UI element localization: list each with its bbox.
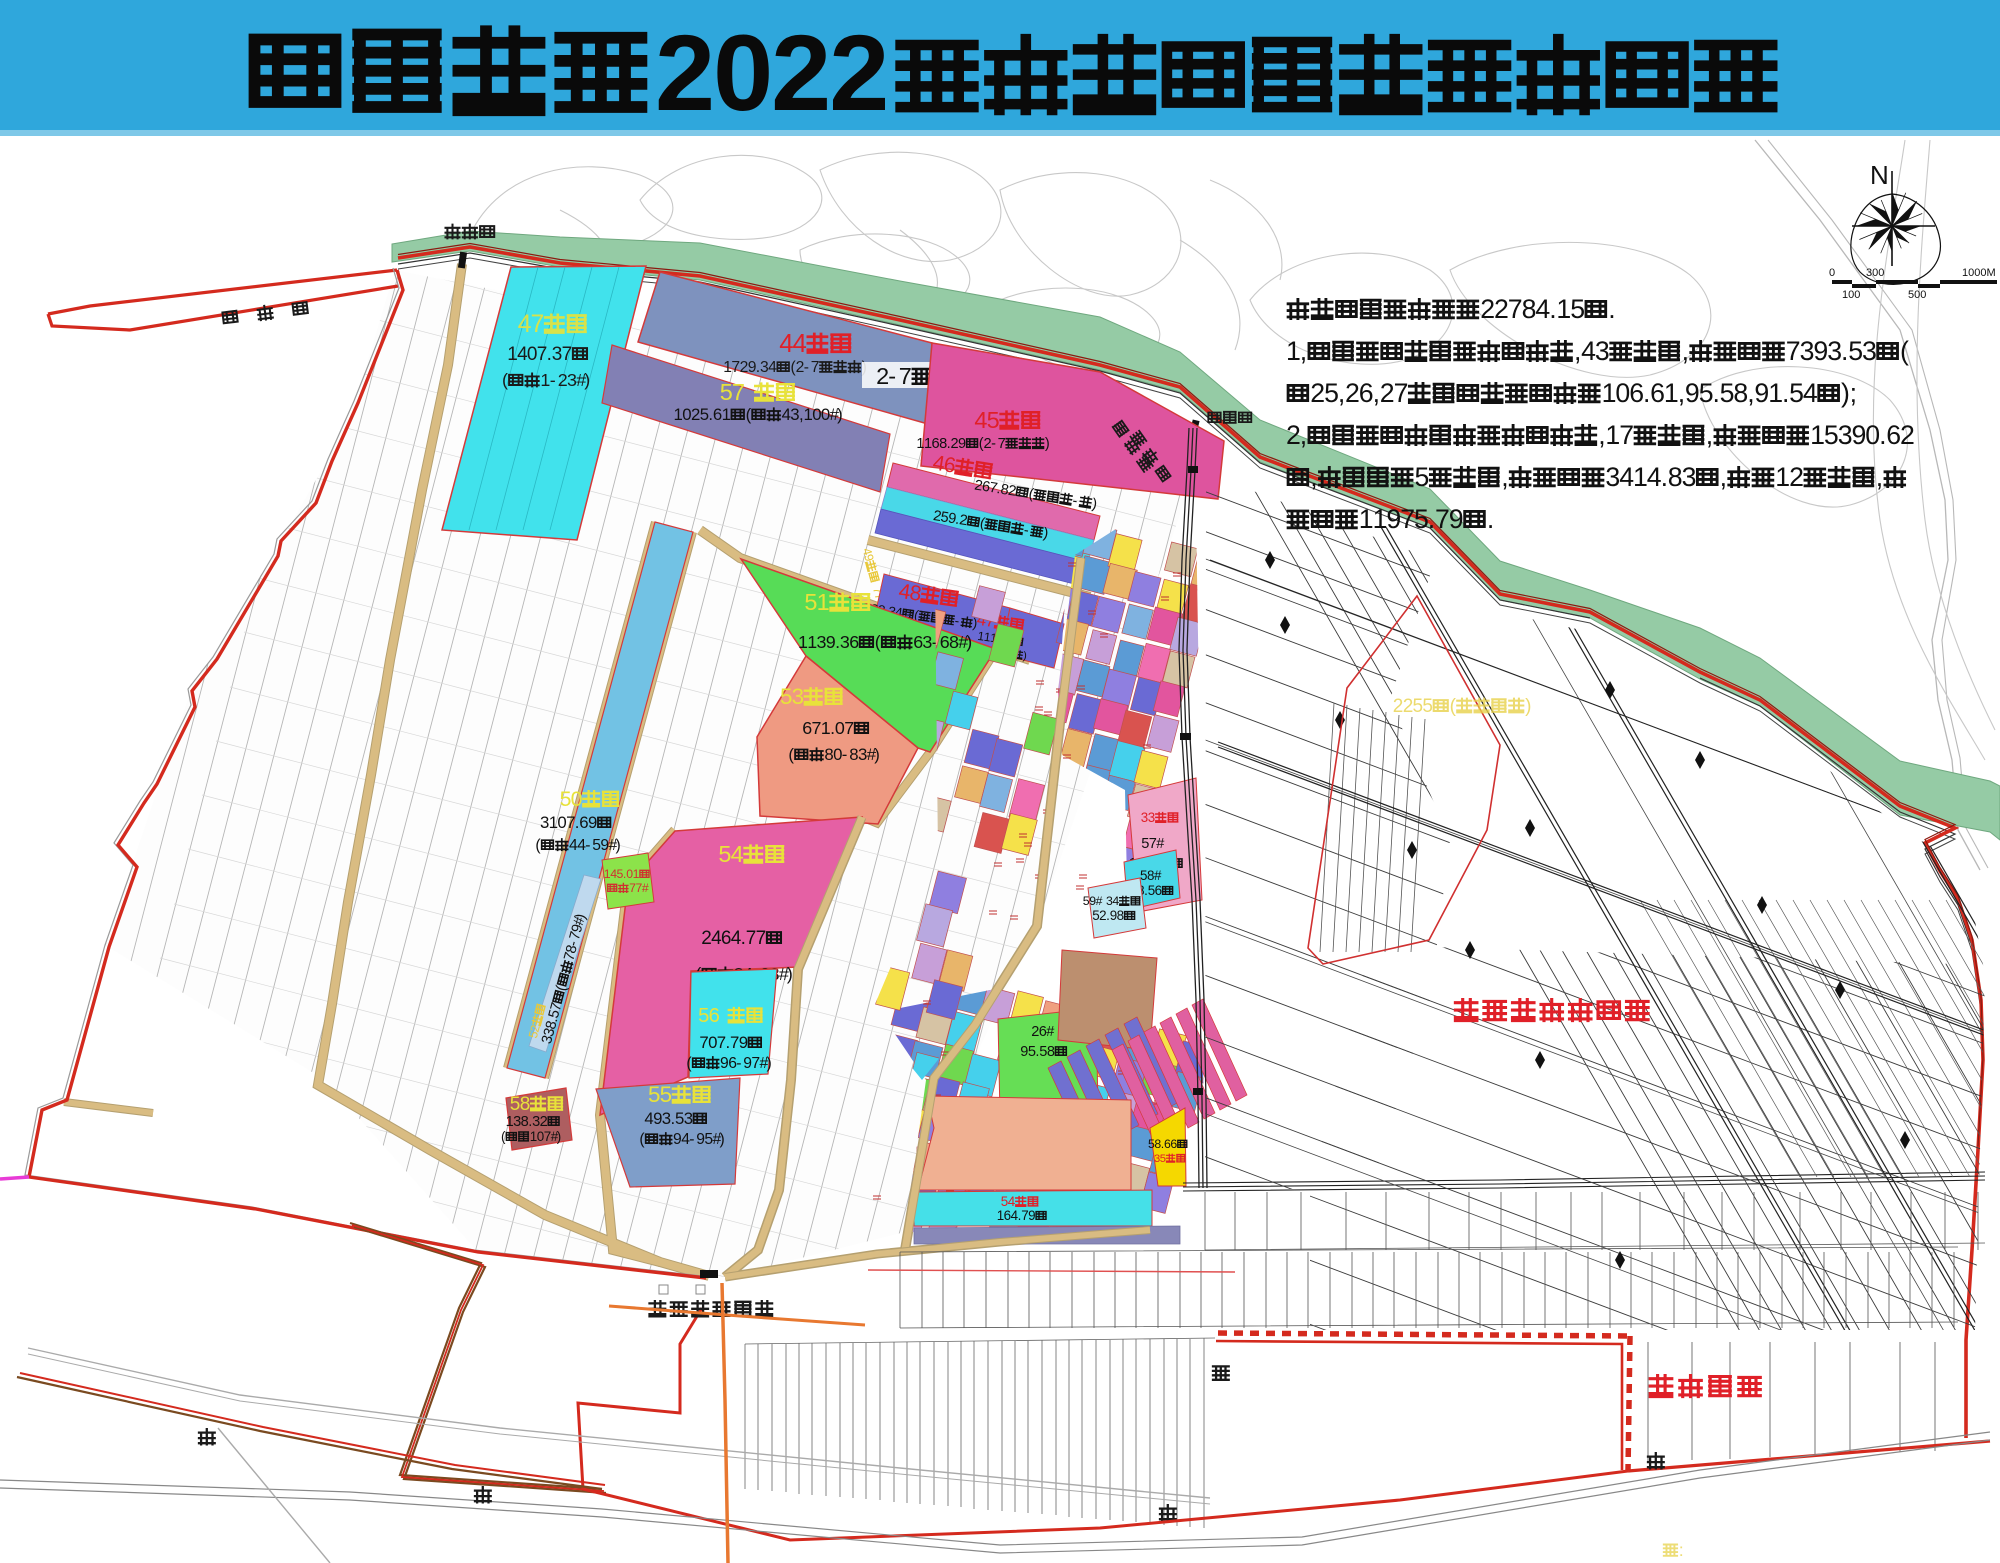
- svg-text:5: 5: [718, 841, 731, 867]
- svg-text:1: 1: [722, 405, 731, 424]
- svg-text:2: 2: [876, 363, 889, 389]
- svg-text:(: (: [686, 1055, 692, 1072]
- svg-text:2: 2: [1494, 294, 1509, 324]
- svg-text:9: 9: [1852, 420, 1867, 450]
- svg-text:1: 1: [1633, 462, 1648, 492]
- svg-text:2: 2: [540, 1114, 548, 1130]
- svg-text:6: 6: [709, 1005, 720, 1027]
- svg-text:7: 7: [1508, 294, 1523, 324]
- svg-text:#: #: [642, 881, 649, 895]
- svg-text:): ): [874, 745, 880, 764]
- svg-text:3: 3: [1682, 462, 1697, 492]
- svg-text:-: -: [736, 1055, 741, 1072]
- svg-text:5: 5: [1160, 1153, 1166, 1165]
- svg-text:4: 4: [779, 330, 793, 358]
- svg-text:1: 1: [1664, 378, 1679, 408]
- svg-text:7: 7: [1435, 504, 1450, 534]
- svg-text:4: 4: [518, 311, 532, 338]
- svg-text:4: 4: [1535, 294, 1550, 324]
- svg-text:,: ,: [1876, 462, 1883, 492]
- svg-text:2: 2: [1380, 378, 1395, 408]
- svg-text:5: 5: [1570, 294, 1585, 324]
- svg-text:6: 6: [1359, 378, 1374, 408]
- svg-text:4: 4: [974, 407, 987, 433]
- svg-text:7: 7: [998, 436, 1006, 452]
- svg-text:7: 7: [899, 363, 912, 389]
- svg-text:(: (: [788, 745, 794, 764]
- svg-text:5: 5: [1824, 420, 1839, 450]
- svg-text:5: 5: [1699, 378, 1714, 408]
- svg-text:-: -: [842, 745, 848, 764]
- svg-text:5: 5: [660, 1082, 672, 1107]
- svg-text:): ): [584, 370, 590, 390]
- svg-text:1: 1: [1359, 504, 1374, 534]
- svg-text:-: -: [888, 363, 896, 389]
- svg-text:#: #: [1154, 868, 1162, 883]
- svg-text:9: 9: [958, 436, 966, 452]
- svg-text:7: 7: [1619, 420, 1634, 450]
- svg-text:2: 2: [1286, 420, 1301, 450]
- svg-text:5: 5: [1415, 462, 1430, 492]
- svg-text:N: N: [1870, 160, 1889, 190]
- svg-text:7: 7: [1394, 378, 1409, 408]
- svg-text:,: ,: [1501, 462, 1508, 492]
- svg-text:1: 1: [817, 589, 830, 615]
- svg-text:500: 500: [1908, 289, 1926, 301]
- svg-text:8: 8: [1668, 462, 1683, 492]
- svg-text:1: 1: [1602, 378, 1617, 408]
- svg-text:8: 8: [1047, 1044, 1055, 1060]
- svg-text:3: 3: [1800, 336, 1815, 366]
- svg-text:8: 8: [1117, 908, 1124, 923]
- svg-text:-: -: [991, 436, 996, 452]
- svg-text:3: 3: [1838, 420, 1853, 450]
- svg-text:(: (: [639, 1131, 645, 1148]
- svg-text:9: 9: [1685, 378, 1700, 408]
- svg-text:7: 7: [562, 344, 573, 365]
- svg-text:,: ,: [1706, 420, 1713, 450]
- svg-text:4: 4: [1008, 1194, 1016, 1209]
- svg-text::: :: [1679, 1540, 1684, 1560]
- svg-text:9: 9: [1386, 504, 1401, 534]
- svg-text:2022: 2022: [655, 12, 887, 133]
- svg-text:(: (: [1450, 696, 1457, 717]
- svg-text:,: ,: [1300, 336, 1307, 366]
- svg-text:): ): [1525, 696, 1531, 717]
- svg-text:): ): [616, 837, 621, 854]
- svg-text:0: 0: [1615, 378, 1630, 408]
- svg-text:7: 7: [811, 359, 820, 376]
- svg-text:4: 4: [1647, 462, 1662, 492]
- svg-text:5: 5: [780, 684, 792, 709]
- svg-text:9: 9: [739, 1033, 748, 1052]
- svg-text:9: 9: [1449, 504, 1464, 534]
- svg-text:5: 5: [1848, 336, 1863, 366]
- svg-text:1: 1: [1768, 378, 1783, 408]
- svg-text:-: -: [689, 1131, 694, 1148]
- svg-text:1: 1: [1556, 294, 1571, 324]
- svg-text:7: 7: [1786, 336, 1801, 366]
- svg-text:-: -: [804, 359, 809, 376]
- svg-text:7: 7: [732, 379, 745, 405]
- svg-text:1000M: 1000M: [1962, 267, 1996, 279]
- svg-text:3: 3: [1862, 336, 1877, 366]
- svg-text:4: 4: [1112, 894, 1119, 908]
- svg-text:4: 4: [731, 841, 744, 867]
- svg-text:7: 7: [1400, 504, 1415, 534]
- svg-text:3: 3: [792, 684, 804, 709]
- svg-text:4: 4: [793, 330, 807, 358]
- svg-text:,: ,: [1720, 462, 1727, 492]
- svg-text:;: ;: [1850, 378, 1857, 408]
- svg-text:-: -: [585, 837, 590, 854]
- svg-text:8: 8: [1522, 294, 1537, 324]
- svg-text:1: 1: [1605, 420, 1620, 450]
- svg-text:5: 5: [648, 1082, 660, 1107]
- svg-text:(: (: [746, 405, 752, 424]
- svg-text:2: 2: [1789, 462, 1804, 492]
- svg-text:6: 6: [1650, 378, 1665, 408]
- svg-text:): ): [720, 1131, 725, 1148]
- svg-text:(: (: [1900, 336, 1909, 366]
- svg-text:8: 8: [1733, 378, 1748, 408]
- svg-text:0: 0: [1865, 420, 1880, 450]
- svg-text:-: -: [550, 370, 556, 390]
- svg-text:5: 5: [1720, 378, 1735, 408]
- svg-text:7: 7: [844, 718, 854, 738]
- svg-text:): ): [1045, 436, 1050, 452]
- svg-text:#: #: [1156, 836, 1165, 852]
- svg-text:): ): [787, 964, 793, 984]
- svg-text:#: #: [1046, 1024, 1055, 1040]
- svg-text:5: 5: [804, 589, 817, 615]
- svg-text:1: 1: [1286, 336, 1301, 366]
- svg-text:(: (: [502, 370, 508, 390]
- svg-text:3: 3: [1148, 810, 1155, 825]
- svg-text:7: 7: [756, 928, 767, 949]
- svg-text:6: 6: [1155, 883, 1162, 898]
- svg-text:(: (: [875, 632, 881, 652]
- svg-text:(: (: [535, 837, 541, 854]
- svg-text:5: 5: [1789, 378, 1804, 408]
- svg-text:2: 2: [1900, 420, 1915, 450]
- svg-text:5: 5: [1414, 504, 1429, 534]
- svg-text:3: 3: [1595, 336, 1610, 366]
- svg-text:8: 8: [520, 1094, 531, 1115]
- svg-text:3: 3: [684, 1109, 693, 1128]
- svg-text:2: 2: [1480, 294, 1495, 324]
- svg-text:6: 6: [1886, 420, 1901, 450]
- svg-text:5: 5: [720, 379, 733, 405]
- svg-text:4: 4: [1803, 378, 1818, 408]
- svg-text:3: 3: [1605, 462, 1620, 492]
- svg-text:5: 5: [1324, 378, 1339, 408]
- svg-text:4: 4: [1619, 462, 1634, 492]
- svg-text:(: (: [501, 1129, 506, 1144]
- svg-text:1: 1: [1775, 462, 1790, 492]
- svg-text:300: 300: [1866, 267, 1884, 279]
- svg-text:.: .: [1487, 504, 1494, 534]
- svg-text:4: 4: [1581, 336, 1596, 366]
- svg-text:5: 5: [987, 407, 1000, 433]
- svg-text:5: 5: [1422, 696, 1433, 717]
- svg-text:,: ,: [1682, 336, 1689, 366]
- svg-text:0: 0: [1829, 267, 1835, 279]
- svg-text:9: 9: [1754, 378, 1769, 408]
- svg-text:7: 7: [531, 311, 545, 338]
- svg-text:): ): [767, 1055, 772, 1072]
- svg-text:3: 3: [1827, 336, 1842, 366]
- svg-text:,: ,: [1310, 462, 1317, 492]
- svg-text:1: 1: [1810, 420, 1825, 450]
- svg-text:6: 6: [1629, 378, 1644, 408]
- svg-text:6: 6: [1170, 1137, 1177, 1151]
- svg-text:2: 2: [1310, 378, 1325, 408]
- svg-text:0: 0: [571, 787, 583, 811]
- svg-text:1: 1: [633, 867, 640, 881]
- svg-text:2: 2: [1345, 378, 1360, 408]
- svg-text:9: 9: [1028, 1208, 1035, 1223]
- svg-text:): ): [557, 1129, 561, 1144]
- svg-text:4: 4: [768, 359, 777, 376]
- svg-text:1: 1: [1373, 504, 1388, 534]
- svg-text:): ): [837, 405, 843, 424]
- svg-text:100: 100: [1842, 289, 1860, 301]
- svg-text:.: .: [1608, 294, 1615, 324]
- svg-text:6: 6: [849, 632, 859, 652]
- svg-text:9: 9: [1813, 336, 1828, 366]
- svg-text:): ): [1841, 378, 1850, 408]
- svg-text:#: #: [1096, 894, 1103, 908]
- svg-text:9: 9: [588, 813, 597, 832]
- svg-text:,: ,: [1300, 420, 1307, 450]
- svg-text:): ): [966, 632, 972, 652]
